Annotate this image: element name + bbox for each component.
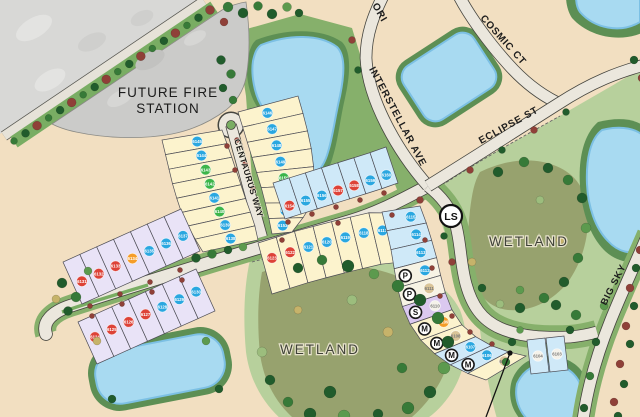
lot-number: 6127 [141,312,151,317]
lot-number: 6134 [128,256,138,261]
tree-icon [238,8,248,18]
lot-6121-marker[interactable]: 6121 [303,242,314,253]
tree-icon [349,37,356,44]
tree-icon [373,409,383,417]
tree-icon [67,98,76,107]
lot-number: 6144 [197,153,207,158]
tree-icon [417,197,424,204]
tree-icon [496,300,504,308]
tree-icon [437,293,442,298]
lot-6159-marker[interactable]: 6159 [365,175,376,186]
tree-icon [563,175,573,185]
lot-6136-marker[interactable]: 6136 [161,238,172,249]
lot-number: 6148 [272,143,282,148]
lot-6144-marker[interactable]: 6144 [196,150,207,161]
lot-6120-marker[interactable]: 6120 [322,237,333,248]
tree-icon [333,204,338,209]
tree-icon [232,167,237,172]
tree-icon [536,196,544,204]
tree-icon [56,106,64,114]
svg-text:M: M [448,351,455,360]
tree-icon [389,212,394,217]
lot-number: 6129 [174,297,184,302]
tree-icon [220,18,228,26]
badge-P-6112: P [399,270,411,282]
tree-icon [551,300,561,310]
svg-text:M: M [433,339,440,348]
lot-number: 6133 [111,264,121,269]
lot-6126-marker[interactable]: 6126 [123,317,134,328]
lot-number: 6142 [205,181,215,186]
tree-icon [265,375,275,385]
lot-6114-marker[interactable]: 6114 [411,229,422,240]
svg-text:P: P [407,290,413,299]
lot-number: 6114 [411,232,421,237]
tree-icon [102,75,111,84]
lot-6157-marker[interactable]: 6157 [333,185,344,196]
tree-icon [179,277,184,282]
tree-icon [622,322,630,330]
tree-icon [283,3,292,12]
lot-6149-marker[interactable]: 6149 [275,156,286,167]
tree-icon [357,197,362,202]
lot-6123-marker[interactable]: 6123 [267,253,278,264]
tree-icon [89,313,94,318]
lot-number: 6121 [304,245,314,250]
lot-6158-marker[interactable]: 6158 [349,180,360,191]
site-plan-map: 61456144614361426141614061396138 6146614… [0,0,640,417]
lot-6131-marker[interactable]: 6131 [77,276,88,287]
lot-number: 6123 [267,256,277,261]
tree-icon [467,329,472,334]
lot-number: 6145 [192,139,202,144]
tree-icon [616,360,624,368]
lot-number: 6112 [420,268,430,273]
lot-6148-marker[interactable]: 6148 [271,140,282,151]
lot-number: 6132 [94,271,104,276]
lot-number: 6115 [406,214,416,219]
lot-number: 6118 [359,231,369,236]
lot-6115-marker[interactable]: 6115 [405,211,416,222]
lot-number: 6156 [317,193,327,198]
tree-icon [441,233,448,240]
lot-6135-marker[interactable]: 6135 [144,246,155,257]
lot-number: 6110 [430,303,440,308]
tree-icon [632,264,640,272]
tree-icon [516,286,524,294]
svg-text:M: M [421,325,428,334]
tree-icon [563,109,570,116]
lift-station-badge: LS [440,205,462,227]
tree-icon [52,295,60,303]
tree-icon [620,380,628,388]
lot-6110-marker[interactable]: 6110 [430,301,441,312]
tree-icon [467,167,474,174]
tree-icon [309,211,314,216]
tree-icon [293,263,303,273]
lot-number: 6106 [482,353,492,358]
tree-icon [160,37,168,45]
tree-icon [429,265,434,270]
tree-icon [381,190,386,195]
lot-6122-marker[interactable]: 6122 [285,247,296,258]
wetland-center-label: WETLAND [280,342,360,357]
lot-number: 6104 [533,354,543,359]
tree-icon [539,293,549,303]
tree-icon [257,347,267,357]
lot-6107-marker[interactable]: 6107 [465,342,476,353]
lot-number: 6143 [201,167,211,172]
tree-icon [224,246,232,254]
tree-icon [295,9,303,17]
lot-number: 6111 [425,286,435,291]
tree-icon [171,29,180,38]
tree-icon [208,250,217,259]
tree-icon [630,302,638,310]
tree-icon [489,341,494,346]
tree-icon [57,278,67,288]
lot-number: 6130 [191,289,201,294]
tree-icon [566,326,574,334]
lot-number: 6157 [333,188,343,193]
lot-number: 6119 [341,235,351,240]
lot-6127-marker[interactable]: 6127 [140,309,151,320]
lot-number: 6126 [124,320,134,325]
lot-number: 6146 [263,110,273,115]
tree-icon [508,338,516,346]
badge-M-6107: M [446,349,458,361]
lot-6143-marker[interactable]: 6143 [200,164,211,175]
lot-number: 6147 [267,127,277,132]
tree-icon [202,337,210,345]
future-fire-station-label-line1: FUTURE FIRE [118,85,218,100]
tree-icon [117,291,122,296]
tree-icon [392,280,404,292]
tree-icon [285,219,290,224]
tree-icon [397,363,407,373]
tree-icon [267,9,277,19]
tree-icon [87,303,92,308]
lot-number: 6125 [107,327,117,332]
tree-icon [11,138,18,145]
tree-icon [342,260,354,272]
lot-6103-marker[interactable]: 6103 [552,349,563,360]
tree-icon [136,52,145,61]
lot-6137-marker[interactable]: 6137 [178,231,189,242]
tree-icon [449,259,456,266]
lot-6106-marker[interactable]: 6106 [482,350,493,361]
tree-icon [515,303,525,313]
lot-number: 6155 [301,198,311,203]
tree-icon [402,402,414,414]
tree-icon [22,129,30,137]
tree-icon [149,289,154,294]
tree-icon [254,2,263,11]
tree-icon [223,2,233,12]
lot-number: 6136 [161,241,171,246]
lot-number: 6120 [322,240,332,245]
tree-icon [283,397,293,407]
lot-6160-marker[interactable]: 6160 [381,170,392,181]
wetland-right-label: WETLAND [489,234,569,249]
badge-M-6108: M [431,337,443,349]
tree-icon [424,386,436,398]
lot-number: 6103 [552,352,562,357]
tree-icon [192,254,201,263]
tree-icon [147,279,152,284]
tree-icon [227,70,236,79]
lot-6156-marker[interactable]: 6156 [317,190,328,201]
tree-icon [493,167,503,177]
tree-icon [468,258,476,266]
tree-icon [119,301,124,306]
tree-icon [33,121,42,130]
lot-6134-marker[interactable]: 6134 [127,253,138,264]
lot-6104-marker[interactable]: 6104 [533,351,544,362]
lot-number: 6158 [349,183,359,188]
tree-icon [279,237,284,242]
tree-icon [383,327,393,337]
tree-icon [432,312,444,324]
tree-icon [610,398,618,406]
tree-icon [177,267,182,272]
tree-icon [93,337,101,345]
lot-number: 6138 [226,236,236,241]
lot-6128-marker[interactable]: 6128 [157,301,168,312]
badge-P-6111: P [403,288,415,300]
tree-icon [543,163,553,173]
tree-icon [355,67,362,74]
tree-icon [573,253,583,263]
tree-icon [414,294,426,306]
tree-icon [149,45,156,52]
lot-number: 6140 [215,209,225,214]
tree-icon [592,338,600,346]
tree-icon [125,60,133,68]
tree-icon [229,96,237,104]
tree-icon [630,56,638,64]
tree-icon [84,267,92,275]
lot-6146-marker[interactable]: 6146 [262,108,273,119]
lot-number: 6113 [416,250,426,255]
lot-number: 6141 [210,195,220,200]
svg-text:S: S [413,308,419,317]
lot-6111-marker[interactable]: 6111 [424,283,435,294]
lot-6129-marker[interactable]: 6129 [174,294,185,305]
tree-icon [438,362,450,374]
lot-6139-marker[interactable]: 6139 [220,220,231,231]
tree-icon [71,292,81,302]
tree-icon [422,237,427,242]
tree-icon [183,22,190,29]
lot-6132-marker[interactable]: 6132 [93,268,104,279]
lift-station-text: LS [444,211,457,223]
lot-6142-marker[interactable]: 6142 [205,178,216,189]
tree-icon [45,114,52,121]
tree-icon [626,284,634,292]
lot-number: 6135 [145,249,155,254]
lot-number: 6128 [158,304,168,309]
tree-icon [206,6,215,15]
lot-6147-marker[interactable]: 6147 [267,124,278,135]
tree-icon [580,404,588,412]
tree-icon [317,255,327,265]
lot-6119-marker[interactable]: 6119 [340,232,351,243]
tree-icon [91,83,99,91]
tree-icon [114,68,121,75]
lot-6125-marker[interactable]: 6125 [107,324,118,335]
tree-icon [217,56,226,65]
lot-6155-marker[interactable]: 6155 [300,195,311,206]
lot-6138-marker[interactable]: 6138 [225,233,236,244]
lot-6141-marker[interactable]: 6141 [209,192,220,203]
svg-text:M: M [465,360,472,369]
tree-icon [335,220,340,225]
lot-number: 6107 [466,345,476,350]
lot-6133-marker[interactable]: 6133 [110,261,121,272]
tree-icon [294,306,302,314]
tree-icon [586,372,594,380]
tree-icon [324,386,336,398]
svg-text:P: P [403,272,409,281]
lot-number: 6131 [77,279,87,284]
tree-icon [517,327,524,334]
lot-number: 6139 [220,223,230,228]
tree-icon [369,269,379,279]
badge-M-6106: M [462,359,474,371]
lot-6145-marker[interactable]: 6145 [192,136,203,147]
tree-icon [571,310,581,320]
tree-icon [219,84,227,92]
lot-number: 6154 [285,203,295,208]
lot-number: 6159 [366,178,376,183]
tree-icon [531,127,538,134]
tree-icon [577,193,587,203]
lot-number: 6122 [285,250,295,255]
tree-icon [581,223,591,233]
lot-6118-marker[interactable]: 6118 [359,228,370,239]
tree-icon [224,143,229,148]
lot-6154-marker[interactable]: 6154 [284,200,295,211]
tree-icon [478,284,486,292]
tree-icon [449,313,454,318]
tree-icon [108,395,116,403]
tree-icon [626,340,634,348]
lot-6130-marker[interactable]: 6130 [191,286,202,297]
badge-S-6110: S [410,306,422,318]
tree-icon [64,307,73,316]
lot-6140-marker[interactable]: 6140 [214,206,225,217]
tree-icon [499,147,506,154]
lot-6113-marker[interactable]: 6113 [416,247,427,258]
tree-icon [215,385,223,393]
lot-number: 6137 [178,233,188,238]
badge-M-6109: M [419,323,431,335]
tree-icon [239,243,247,251]
tree-icon [347,295,357,305]
lot-6112-marker[interactable]: 6112 [420,265,431,276]
tree-icon [442,336,454,348]
lot-number: 6149 [276,159,286,164]
future-fire-station-label-line2: STATION [136,101,200,116]
tree-icon [80,91,87,98]
lot-number: 6160 [382,173,392,178]
tree-icon [194,14,202,22]
tree-icon [559,277,569,287]
tree-icon [519,157,529,167]
